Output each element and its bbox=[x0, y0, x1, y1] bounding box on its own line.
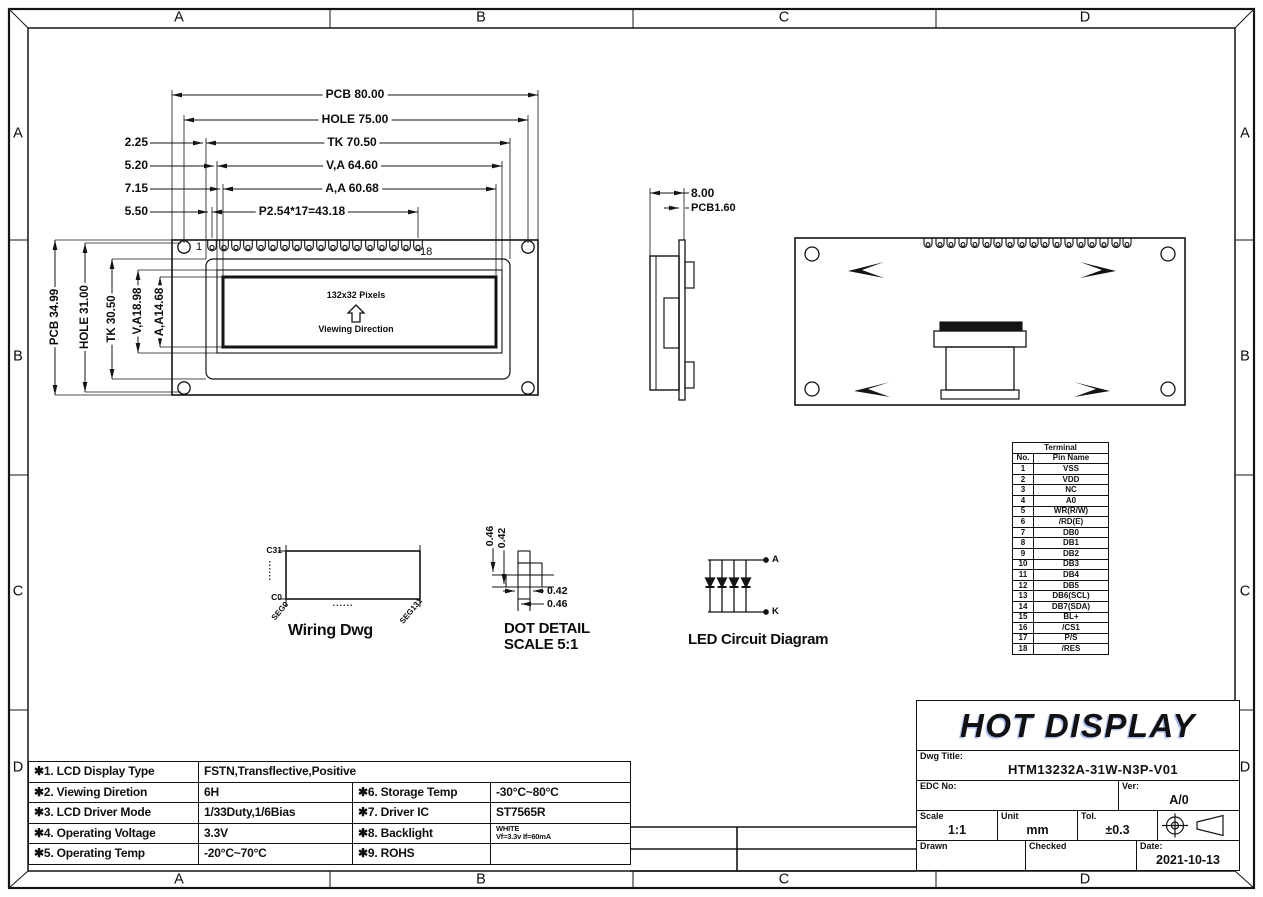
spec-value: 3.3V bbox=[199, 823, 353, 844]
dim-hole-width: HOLE 75.00 bbox=[319, 113, 392, 126]
dim-side-width: 8.00 bbox=[691, 186, 714, 200]
terminal-pin-name: VSS bbox=[1034, 464, 1109, 475]
spec-row: ✱5. Operating Temp -20°C~70°C ✱9. ROHS bbox=[29, 844, 631, 865]
zone-left-a: A bbox=[13, 127, 23, 142]
dot-dim-v2: 0.42 bbox=[496, 526, 508, 550]
dot-dim-h2: 0.46 bbox=[547, 598, 567, 610]
spec-label: ✱8. Backlight bbox=[353, 823, 491, 844]
dim-pin-pitch: P2.54*17=43.18 bbox=[256, 205, 348, 218]
terminal-pin-name: /RES bbox=[1034, 644, 1109, 655]
dot-detail bbox=[492, 548, 554, 611]
date-label: Date: bbox=[1140, 842, 1163, 851]
terminal-pin-number: 7 bbox=[1013, 527, 1034, 538]
drawing-sheet: A B C D A B C D A B C D A B C D PCB 80.0… bbox=[0, 0, 1263, 897]
company-name: HOT DISPLAY bbox=[917, 701, 1239, 750]
terminal-row: 5 WR(R/W) bbox=[1013, 506, 1109, 517]
dwg-title-label: Dwg Title: bbox=[920, 752, 963, 761]
terminal-pin-name: /RD(E) bbox=[1034, 517, 1109, 528]
zone-bottom-d: D bbox=[1080, 873, 1090, 888]
terminal-pin-number: 16 bbox=[1013, 623, 1034, 634]
spec-label: ✱5. Operating Temp bbox=[29, 844, 199, 865]
projection-symbol-icon bbox=[1159, 812, 1235, 839]
pin-18-label: 18 bbox=[420, 246, 432, 258]
zone-right-d: D bbox=[1240, 761, 1250, 776]
terminal-pin-name: DB5 bbox=[1034, 580, 1109, 591]
zone-bottom-b: B bbox=[476, 873, 486, 888]
title-block: HOT DISPLAY Dwg Title: HTM13232A-31W-N3P… bbox=[916, 700, 1240, 871]
terminal-pin-number: 8 bbox=[1013, 538, 1034, 549]
spec-row: ✱3. LCD Driver Mode 1/33Duty,1/6Bias ✱7.… bbox=[29, 803, 631, 824]
dot-dim-h1: 0.42 bbox=[547, 585, 567, 597]
dot-detail-caption: DOT DETAIL bbox=[504, 620, 590, 637]
terminal-row: 12 DB5 bbox=[1013, 580, 1109, 591]
zone-top-d: D bbox=[1080, 11, 1090, 26]
spec-label: ✱2. Viewing Diretion bbox=[29, 782, 199, 803]
spec-label: ✱1. LCD Display Type bbox=[29, 762, 199, 783]
terminal-row: 18 /RES bbox=[1013, 644, 1109, 655]
zone-left-c: C bbox=[13, 585, 23, 600]
dim-offset-3: 7.15 bbox=[98, 182, 148, 195]
wiring-com-top-label: C31 bbox=[250, 545, 282, 555]
spec-label: ✱4. Operating Voltage bbox=[29, 823, 199, 844]
terminal-pin-number: 2 bbox=[1013, 474, 1034, 485]
terminal-pin-name: A0 bbox=[1034, 495, 1109, 506]
tol-label: Tol. bbox=[1081, 812, 1096, 821]
zone-top-b: B bbox=[476, 11, 486, 26]
dwg-title-value: HTM13232A-31W-N3P-V01 bbox=[917, 763, 1239, 776]
spec-value: 6H bbox=[199, 782, 353, 803]
viewing-direction-label: Viewing Direction bbox=[318, 324, 393, 334]
spec-value: WHITE Vf=3.3v If=60mA bbox=[491, 823, 631, 844]
terminal-row: 4 A0 bbox=[1013, 495, 1109, 506]
spec-value: FSTN,Transflective,Positive bbox=[199, 762, 631, 783]
spec-row: ✱2. Viewing Diretion 6H ✱6. Storage Temp… bbox=[29, 782, 631, 803]
date-value: 2021-10-13 bbox=[1137, 854, 1239, 867]
terminal-pin-number: 10 bbox=[1013, 559, 1034, 570]
spec-label: ✱9. ROHS bbox=[353, 844, 491, 865]
terminal-pin-name: DB0 bbox=[1034, 527, 1109, 538]
terminal-pin-number: 13 bbox=[1013, 591, 1034, 602]
front-view bbox=[172, 240, 538, 395]
led-cathode-label: K bbox=[772, 606, 779, 617]
terminal-pin-number: 1 bbox=[1013, 464, 1034, 475]
terminal-pin-number: 6 bbox=[1013, 517, 1034, 528]
led-circuit bbox=[706, 558, 769, 614]
continuation-cells bbox=[630, 827, 916, 871]
display-resolution-label: 132x32 Pixels bbox=[327, 290, 386, 300]
wiring-caption: Wiring Dwg bbox=[288, 622, 373, 640]
terminal-pin-name: NC bbox=[1034, 485, 1109, 496]
unit-value: mm bbox=[998, 824, 1077, 837]
dim-offset-1: 2.25 bbox=[98, 136, 148, 149]
backlight-rating: Vf=3.3v If=60mA bbox=[496, 833, 630, 842]
drawn-label: Drawn bbox=[920, 842, 948, 851]
led-circuit-caption: LED Circuit Diagram bbox=[688, 631, 828, 648]
terminal-pin-number: 3 bbox=[1013, 485, 1034, 496]
terminal-row: 8 DB1 bbox=[1013, 538, 1109, 549]
spec-label: ✱6. Storage Temp bbox=[353, 782, 491, 803]
dim-aa-height: A,A14.68 bbox=[154, 286, 166, 339]
terminal-row: 14 DB7(SDA) bbox=[1013, 601, 1109, 612]
spec-value: 1/33Duty,1/6Bias bbox=[199, 803, 353, 824]
dim-tk-height: TK 30.50 bbox=[106, 293, 118, 344]
scale-value: 1:1 bbox=[917, 824, 997, 837]
led-anode-label: A bbox=[772, 554, 779, 565]
terminal-col-no: No. bbox=[1013, 453, 1034, 464]
terminal-row: 6 /RD(E) bbox=[1013, 517, 1109, 528]
terminal-pin-name: BL+ bbox=[1034, 612, 1109, 623]
terminal-row: 15 BL+ bbox=[1013, 612, 1109, 623]
zone-left-b: B bbox=[13, 350, 23, 365]
zone-right-b: B bbox=[1240, 350, 1250, 365]
wiring-com-bottom-label: C0 bbox=[254, 592, 282, 602]
checked-label: Checked bbox=[1029, 842, 1067, 851]
terminal-pin-number: 5 bbox=[1013, 506, 1034, 517]
terminal-pin-number: 17 bbox=[1013, 633, 1034, 644]
terminal-pin-number: 15 bbox=[1013, 612, 1034, 623]
terminal-pin-name: P/S bbox=[1034, 633, 1109, 644]
dim-va-width: V,A 64.60 bbox=[323, 159, 381, 172]
ver-label: Ver: bbox=[1122, 782, 1139, 791]
zone-top-a: A bbox=[174, 11, 184, 26]
dim-pcb-width: PCB 80.00 bbox=[323, 88, 388, 101]
terminal-row: 16 /CS1 bbox=[1013, 623, 1109, 634]
dim-pcb-height: PCB 34.99 bbox=[49, 287, 61, 347]
terminal-pin-number: 11 bbox=[1013, 570, 1034, 581]
terminal-pin-name: DB1 bbox=[1034, 538, 1109, 549]
dim-offset-4: 5.50 bbox=[98, 205, 148, 218]
edc-no-label: EDC No: bbox=[920, 782, 957, 791]
terminal-pin-number: 12 bbox=[1013, 580, 1034, 591]
terminal-pin-number: 14 bbox=[1013, 601, 1034, 612]
terminal-row: 2 VDD bbox=[1013, 474, 1109, 485]
terminal-pin-name: VDD bbox=[1034, 474, 1109, 485]
spec-label: ✱7. Driver IC bbox=[353, 803, 491, 824]
viewing-direction-arrow-icon bbox=[348, 305, 364, 322]
terminal-pin-name: DB7(SDA) bbox=[1034, 601, 1109, 612]
terminal-pin-name: /CS1 bbox=[1034, 623, 1109, 634]
terminal-row: 13 DB6(SCL) bbox=[1013, 591, 1109, 602]
pin-1-label: 1 bbox=[196, 241, 202, 253]
dim-offset-2: 5.20 bbox=[98, 159, 148, 172]
wiring-horizontal-dots: ...... bbox=[332, 598, 353, 608]
terminal-pin-name: DB4 bbox=[1034, 570, 1109, 581]
rear-view bbox=[795, 238, 1185, 405]
terminal-col-pin-name: Pin Name bbox=[1034, 453, 1109, 464]
terminal-row: 7 DB0 bbox=[1013, 527, 1109, 538]
terminal-row: 11 DB4 bbox=[1013, 570, 1109, 581]
zone-top-c: C bbox=[779, 11, 789, 26]
terminal-pin-number: 9 bbox=[1013, 548, 1034, 559]
spec-value: ST7565R bbox=[491, 803, 631, 824]
dim-pcb-thickness: PCB1.60 bbox=[691, 202, 736, 214]
zone-bottom-c: C bbox=[779, 873, 789, 888]
tol-value: ±0.3 bbox=[1078, 824, 1157, 837]
terminal-pin-number: 4 bbox=[1013, 495, 1034, 506]
dim-aa-width: A,A 60.68 bbox=[322, 182, 382, 195]
spec-value bbox=[491, 844, 631, 865]
dim-hole-height: HOLE 31.00 bbox=[79, 283, 91, 351]
wiring-vertical-dots: ...... bbox=[267, 560, 277, 581]
terminal-table: Terminal No. Pin Name 1 VSS 2 VDD 3 NC 4 bbox=[1012, 442, 1109, 655]
terminal-pin-name: DB6(SCL) bbox=[1034, 591, 1109, 602]
ver-value: A/0 bbox=[1119, 794, 1239, 807]
spec-row: ✱4. Operating Voltage 3.3V ✱8. Backlight… bbox=[29, 823, 631, 844]
spec-row: ✱1. LCD Display Type FSTN,Transflective,… bbox=[29, 762, 631, 783]
terminal-row: 9 DB2 bbox=[1013, 548, 1109, 559]
terminal-table-title: Terminal bbox=[1013, 443, 1109, 454]
rear-connector bbox=[934, 322, 1026, 399]
spec-label: ✱3. LCD Driver Mode bbox=[29, 803, 199, 824]
zone-bottom-a: A bbox=[174, 873, 184, 888]
dot-detail-scale: SCALE 5:1 bbox=[504, 636, 578, 653]
spec-value: -20°C~70°C bbox=[199, 844, 353, 865]
unit-label: Unit bbox=[1001, 812, 1019, 821]
spec-table: ✱1. LCD Display Type FSTN,Transflective,… bbox=[28, 761, 631, 865]
terminal-row: 3 NC bbox=[1013, 485, 1109, 496]
terminal-pin-name: DB2 bbox=[1034, 548, 1109, 559]
zone-right-a: A bbox=[1240, 127, 1250, 142]
terminal-pin-name: WR(R/W) bbox=[1034, 506, 1109, 517]
zone-left-d: D bbox=[13, 761, 23, 776]
side-view bbox=[650, 188, 694, 400]
terminal-pin-name: DB3 bbox=[1034, 559, 1109, 570]
dim-va-height: V,A18.98 bbox=[132, 286, 144, 337]
terminal-pin-number: 18 bbox=[1013, 644, 1034, 655]
zone-right-c: C bbox=[1240, 585, 1250, 600]
spec-value: -30°C~80°C bbox=[491, 782, 631, 803]
terminal-row: 17 P/S bbox=[1013, 633, 1109, 644]
terminal-row: 10 DB3 bbox=[1013, 559, 1109, 570]
scale-label: Scale bbox=[920, 812, 944, 821]
terminal-row: 1 VSS bbox=[1013, 464, 1109, 475]
dim-tk-width: TK 70.50 bbox=[324, 136, 379, 149]
dot-dim-v1: 0.46 bbox=[484, 524, 496, 548]
